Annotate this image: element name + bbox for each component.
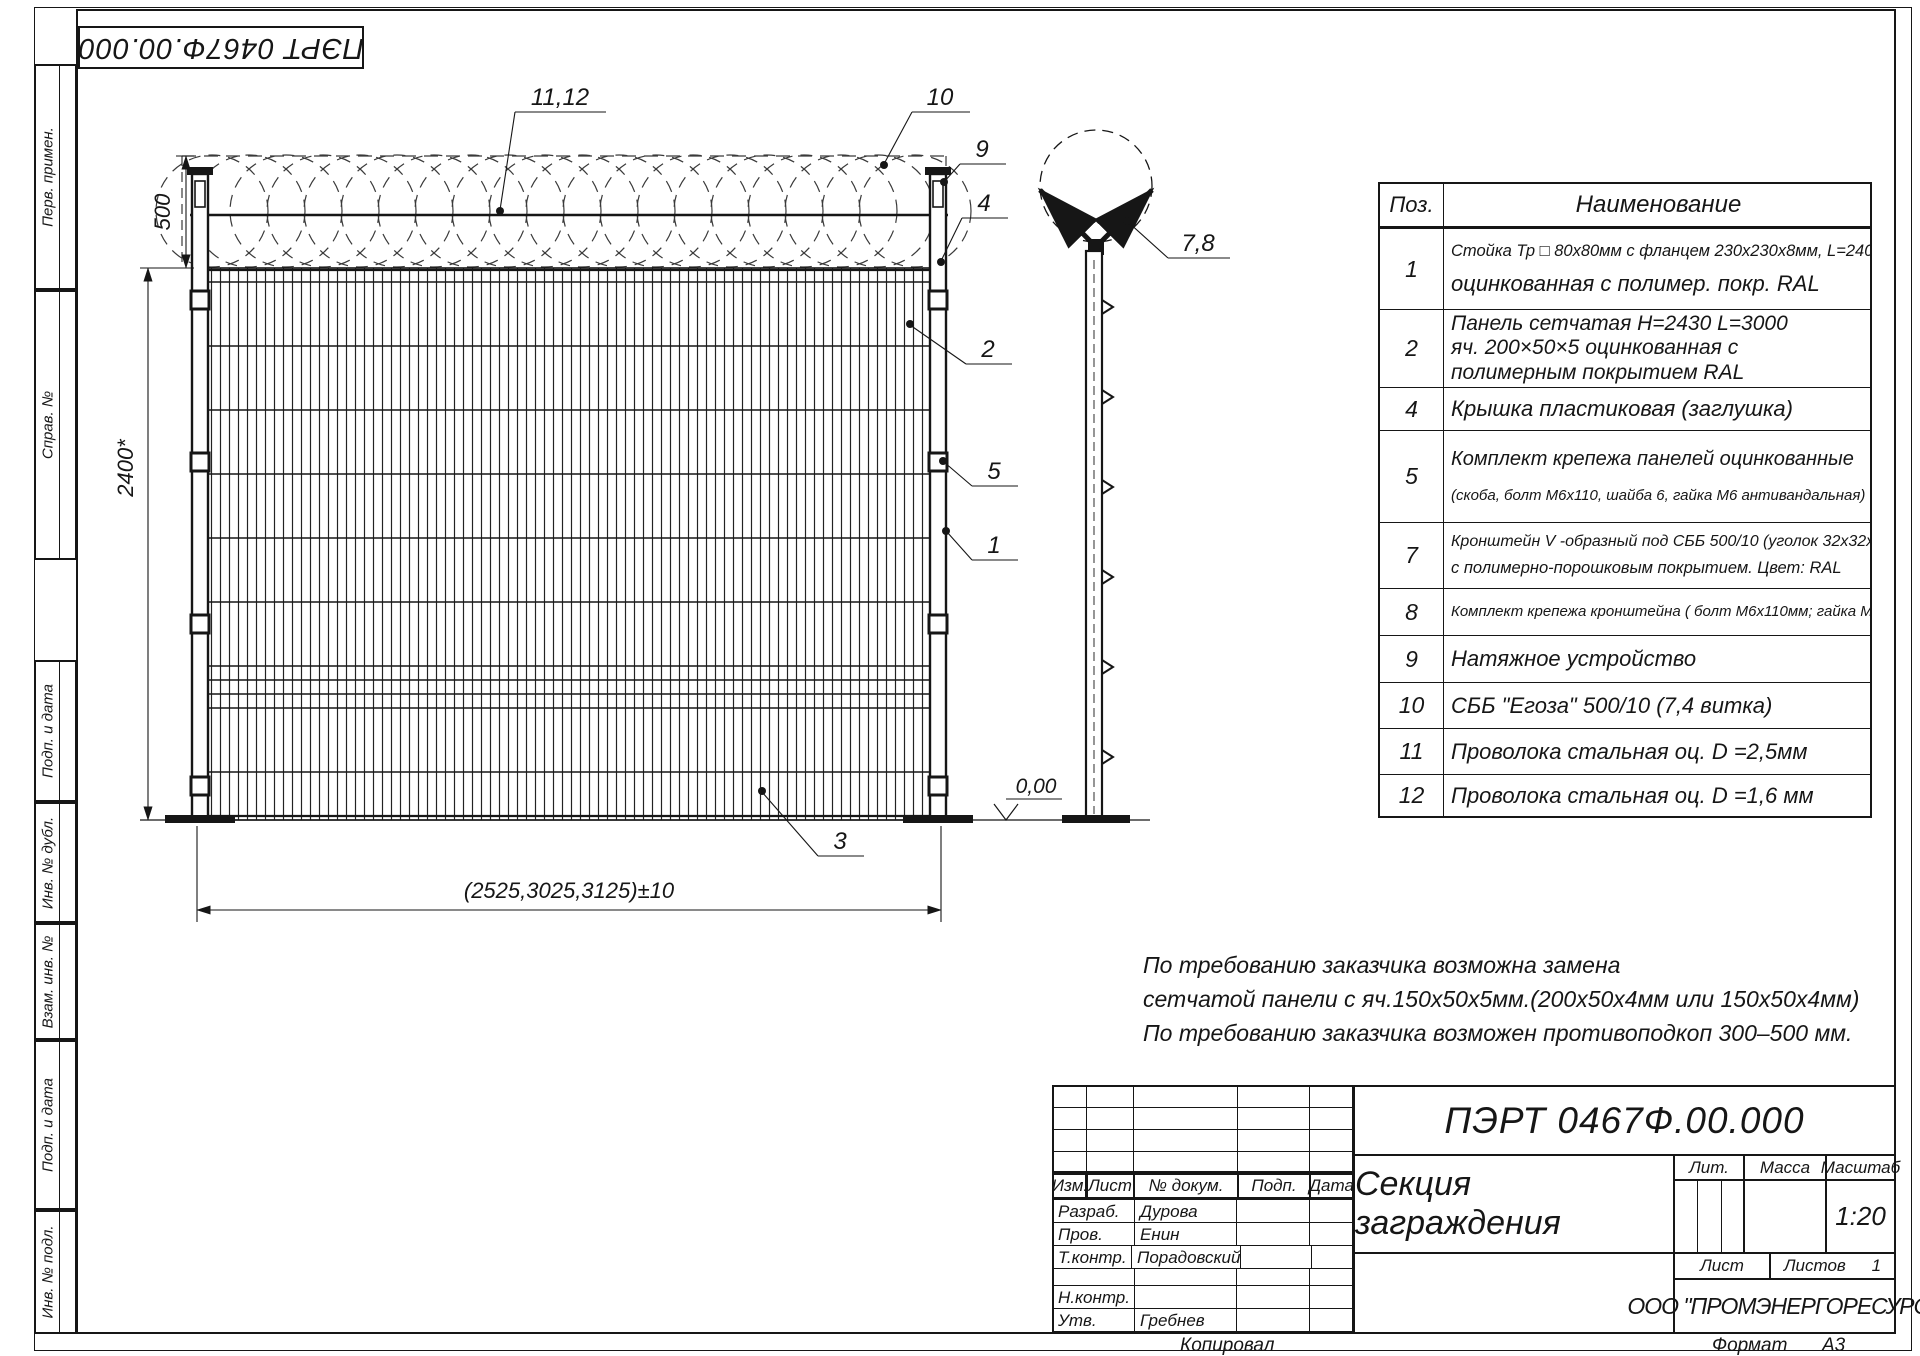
grid-line xyxy=(1237,1085,1238,1173)
part-row-8: 8 Комплект крепежа кронштейна ( болт М6х… xyxy=(1380,588,1870,635)
footer-format-label: Формат xyxy=(1712,1335,1787,1356)
listov-cell: Листов 1 xyxy=(1769,1252,1896,1280)
part-row-5: 5 Комплект крепежа панелей оцинкованные … xyxy=(1380,430,1870,522)
coil-circles xyxy=(156,155,971,267)
right-post xyxy=(930,174,946,820)
sig-sign xyxy=(1236,1200,1309,1222)
part-name-line: Комплект крепежа панелей оцинкованные xyxy=(1451,449,1866,470)
callout-label: 3 xyxy=(833,828,847,855)
callout-label: 7,8 xyxy=(1181,230,1215,257)
part-row-10: 10 СББ "Егоза" 500/10 (7,4 витка) xyxy=(1380,682,1870,728)
part-name-line: полимерным покрытием RAL xyxy=(1451,362,1866,384)
col-header-name: Наименование xyxy=(1444,184,1870,226)
left-post-cap xyxy=(187,167,213,175)
part-name-line: яч. 200×50×5 оцинкованная с xyxy=(1451,337,1866,359)
part-row-1: 1 Стойка Тр □ 80х80мм с фланцем 230х230х… xyxy=(1380,227,1870,309)
callout-label: 4 xyxy=(977,190,990,217)
dim-fence-height: 2400* xyxy=(113,438,138,498)
dim-coil-height: 500 xyxy=(150,193,175,230)
sig-role: Разраб. xyxy=(1054,1200,1134,1222)
part-name-line: с полимерно-порошковым покрытием. Цвет: … xyxy=(1451,560,1866,577)
sig-sign xyxy=(1236,1309,1309,1331)
lit-divider xyxy=(1697,1181,1698,1252)
mesh-panel xyxy=(208,268,930,820)
left-post-base xyxy=(165,815,235,823)
hdr-docnum: № докум. xyxy=(1133,1173,1239,1199)
part-name-line: Натяжное устройство xyxy=(1451,647,1866,670)
callout-7-8: 7,8 xyxy=(1123,217,1230,258)
part-row-7: 7 Кронштейн V -образный под СББ 500/10 (… xyxy=(1380,522,1870,588)
part-row-9: 9 Натяжное устройство xyxy=(1380,635,1870,682)
parts-table: Поз. Наименование 1 Стойка Тр □ 80х80мм … xyxy=(1378,182,1872,818)
part-name-line: Крышка пластиковая (заглушка) xyxy=(1451,397,1866,420)
part-name-line: Стойка Тр □ 80х80мм с фланцем 230х230х8м… xyxy=(1451,243,1866,260)
callout-label: 10 xyxy=(927,84,954,111)
footer-format-value: А3 xyxy=(1822,1335,1845,1356)
list-cell: Лист xyxy=(1673,1252,1771,1280)
part-pos: 2 xyxy=(1380,310,1444,387)
scale-cell: 1:20 xyxy=(1825,1179,1896,1254)
dim-section-width: (2525,3025,3125)±10 xyxy=(464,878,675,903)
sig-name: Енин xyxy=(1134,1223,1236,1245)
sig-name xyxy=(1134,1269,1236,1285)
sig-name: Гребнев xyxy=(1134,1309,1236,1331)
footer-copied: Копировал xyxy=(1180,1335,1275,1356)
note-line: По требованию заказчика возможна замена xyxy=(1143,948,1920,982)
note-line: сетчатой панели с яч.150х50х5мм.(200х50х… xyxy=(1143,982,1920,1016)
sig-role: Утв. xyxy=(1054,1309,1134,1331)
sig-row: Н.контр. xyxy=(1054,1286,1352,1309)
sig-rows: Разраб. Дурова Пров. Енин Т.контр. Порад… xyxy=(1052,1198,1354,1333)
lit-cell xyxy=(1673,1179,1745,1254)
v-bracket-left-arm xyxy=(1040,190,1096,247)
part-pos: 5 xyxy=(1380,431,1444,522)
part-name-line: СББ "Егоза" 500/10 (7,4 витка) xyxy=(1451,694,1866,717)
part-name-line: Кронштейн V -образный под СББ 500/10 (уг… xyxy=(1451,534,1866,551)
hdr-list: Лист xyxy=(1085,1173,1135,1199)
sig-sign xyxy=(1236,1286,1309,1308)
hdr-massa: Масса xyxy=(1743,1154,1827,1181)
drawing-sheet: Перв. примен. Справ. № Подп. и дата Инв.… xyxy=(0,0,1920,1356)
title-name: Секция заграждения xyxy=(1353,1154,1675,1254)
sig-name: Порадовский xyxy=(1131,1246,1240,1268)
listov-value: 1 xyxy=(1872,1256,1881,1276)
sig-date xyxy=(1309,1200,1352,1222)
part-row-2: 2 Панель сетчатая Н=2430 L=3000 яч. 200×… xyxy=(1380,309,1870,387)
callout-label: 1 xyxy=(987,532,1000,559)
coil-circle-side xyxy=(1040,130,1152,242)
callout-label: 5 xyxy=(987,458,1001,485)
callout-label: 9 xyxy=(975,136,988,163)
sig-name: Дурова xyxy=(1134,1200,1236,1222)
callout-label: 2 xyxy=(980,336,994,363)
barbed-coil-front xyxy=(156,155,971,268)
sig-date xyxy=(1309,1223,1352,1245)
callout-9: 9 xyxy=(940,136,1006,186)
callout-4: 4 xyxy=(937,190,1008,266)
grid-line xyxy=(1133,1085,1134,1173)
sig-sign xyxy=(1240,1246,1310,1268)
part-pos: 12 xyxy=(1380,775,1444,816)
hdr-lit: Лит. xyxy=(1673,1154,1745,1181)
col-header-pos: Поз. xyxy=(1380,184,1444,226)
note-line: По требованию заказчика возможен противо… xyxy=(1143,1016,1920,1050)
part-name-line: Комплект крепежа кронштейна ( болт М6х11… xyxy=(1451,604,1866,620)
sig-name xyxy=(1134,1286,1236,1308)
sig-row xyxy=(1054,1269,1352,1286)
level-mark: 0,00 xyxy=(994,775,1062,820)
right-post-base xyxy=(903,815,973,823)
part-pos: 10 xyxy=(1380,683,1444,728)
hdr-masshtab: Масштаб xyxy=(1825,1154,1896,1181)
part-row-11: 11 Проволока стальная оц. D =2,5мм xyxy=(1380,728,1870,774)
customer-notes: По требованию заказчика возможна замена … xyxy=(1143,948,1920,1050)
part-pos: 1 xyxy=(1380,229,1444,309)
part-pos: 9 xyxy=(1380,636,1444,682)
side-view xyxy=(1040,130,1152,823)
grid-line xyxy=(1086,1085,1087,1173)
sig-role: Т.контр. xyxy=(1054,1246,1131,1268)
sig-row: Т.контр. Порадовский xyxy=(1054,1246,1352,1269)
parts-table-header: Поз. Наименование xyxy=(1380,184,1870,227)
part-name-line: оцинкованная с полимер. покр. RAL xyxy=(1451,272,1866,295)
listov-label: Листов xyxy=(1784,1256,1846,1276)
part-pos: 8 xyxy=(1380,589,1444,635)
part-row-12: 12 Проволока стальная оц. D =1,6 мм xyxy=(1380,774,1870,816)
side-bracket-marks xyxy=(1102,300,1113,764)
level-value: 0,00 xyxy=(1016,775,1057,798)
sig-role xyxy=(1054,1269,1134,1285)
lit-divider xyxy=(1721,1181,1722,1252)
sig-row: Утв. Гребнев xyxy=(1054,1309,1352,1331)
left-tensioner xyxy=(195,181,205,207)
callout-5: 5 xyxy=(939,457,1018,486)
callout-1: 1 xyxy=(942,527,1018,560)
part-pos: 7 xyxy=(1380,523,1444,588)
part-name-line: (скоба, болт М6х110, шайба 6, гайка М6 а… xyxy=(1451,488,1866,504)
left-post xyxy=(192,174,208,820)
sig-row: Разраб. Дурова xyxy=(1054,1200,1352,1223)
grid-line xyxy=(1309,1085,1310,1173)
part-pos: 4 xyxy=(1380,388,1444,430)
sig-row: Пров. Енин xyxy=(1054,1223,1352,1246)
sig-date xyxy=(1311,1246,1352,1268)
sig-role: Н.контр. xyxy=(1054,1286,1134,1308)
hdr-izm: Изм. xyxy=(1052,1173,1088,1199)
part-row-4: 4 Крышка пластиковая (заглушка) xyxy=(1380,387,1870,430)
part-name-line: Проволока стальная оц. D =2,5мм xyxy=(1451,740,1866,763)
side-post-base xyxy=(1062,815,1130,823)
sig-sign xyxy=(1236,1269,1309,1285)
sig-role: Пров. xyxy=(1054,1223,1134,1245)
company-cell: ООО "ПРОМЭНЕРГОРЕСУРС " xyxy=(1673,1278,1896,1334)
sig-sign xyxy=(1236,1223,1309,1245)
hdr-podp: Подп. xyxy=(1237,1173,1311,1199)
sig-date xyxy=(1309,1286,1352,1308)
callout-label: 11,12 xyxy=(531,84,589,111)
callout-11-12: 11,12 xyxy=(496,84,606,215)
right-post-cap xyxy=(925,167,951,175)
sig-date xyxy=(1309,1309,1352,1331)
part-name-line: Панель сетчатая Н=2430 L=3000 xyxy=(1451,313,1866,335)
part-name-line: Проволока стальная оц. D =1,6 мм xyxy=(1451,784,1866,807)
title-designation: ПЭРТ 0467Ф.00.000 xyxy=(1353,1085,1896,1156)
hdr-data: Дата xyxy=(1309,1173,1354,1199)
sig-date xyxy=(1309,1269,1352,1285)
massa-cell xyxy=(1743,1179,1827,1254)
part-pos: 11 xyxy=(1380,729,1444,774)
